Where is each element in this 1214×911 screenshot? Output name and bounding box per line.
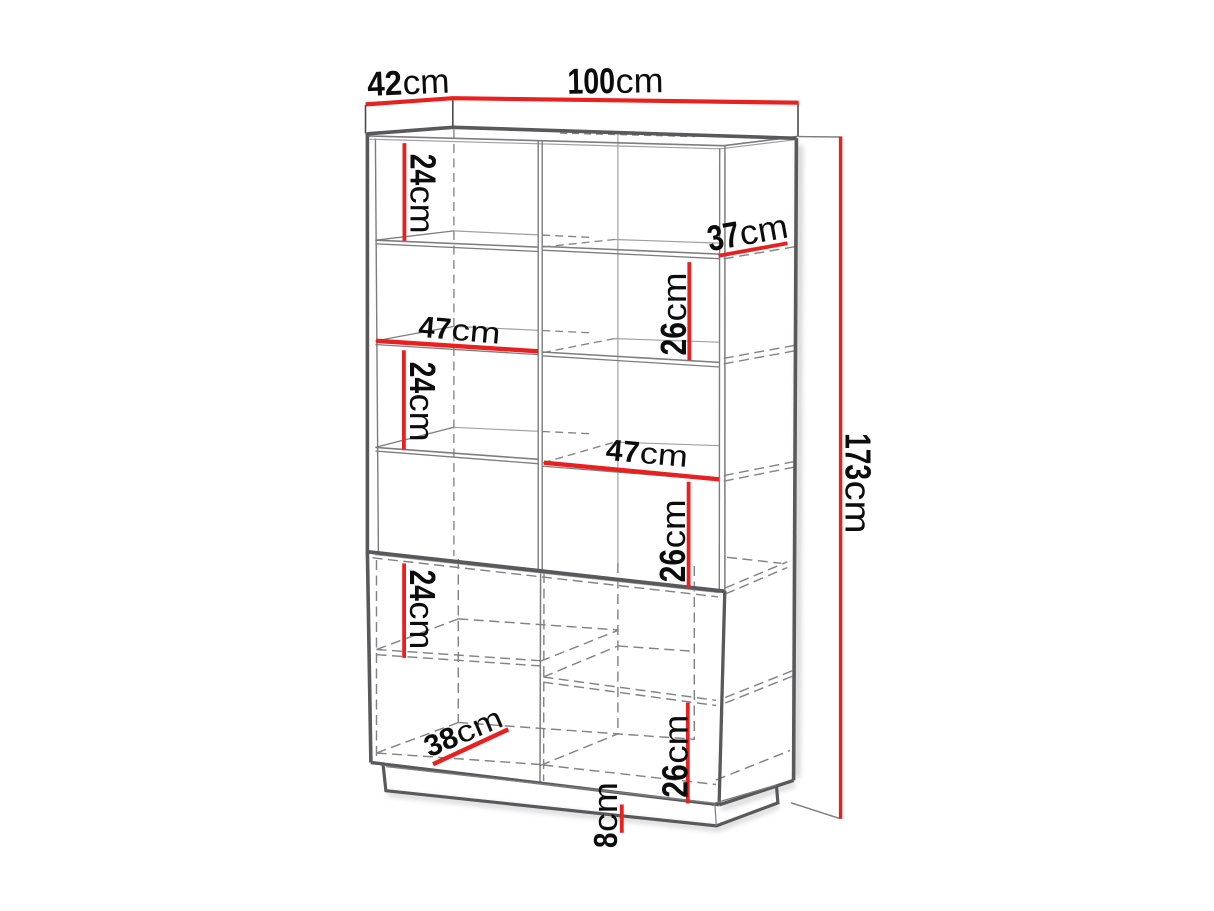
svg-text:42: 42	[366, 65, 402, 104]
svg-text:8: 8	[588, 833, 625, 849]
svg-text:24: 24	[402, 362, 443, 393]
svg-text:47: 47	[605, 434, 641, 470]
svg-text:cm: cm	[837, 481, 878, 534]
svg-text:24: 24	[402, 570, 443, 601]
svg-text:26: 26	[655, 764, 696, 798]
svg-text:cm: cm	[450, 314, 502, 351]
svg-text:100: 100	[567, 60, 615, 102]
svg-text:cm: cm	[402, 394, 440, 442]
svg-text:cm: cm	[615, 62, 664, 101]
svg-text:47: 47	[417, 311, 452, 347]
svg-text:cm: cm	[655, 499, 693, 548]
svg-text:cm: cm	[656, 273, 694, 322]
svg-text:cm: cm	[658, 715, 696, 764]
svg-text:cm: cm	[402, 601, 440, 649]
svg-text:173: 173	[837, 433, 878, 480]
svg-text:cm: cm	[639, 437, 690, 474]
svg-text:cm: cm	[402, 186, 440, 234]
svg-text:24: 24	[402, 154, 443, 185]
svg-text:26: 26	[652, 549, 693, 583]
svg-text:cm: cm	[587, 782, 625, 832]
svg-text:26: 26	[653, 322, 694, 356]
svg-text:cm: cm	[402, 62, 451, 102]
